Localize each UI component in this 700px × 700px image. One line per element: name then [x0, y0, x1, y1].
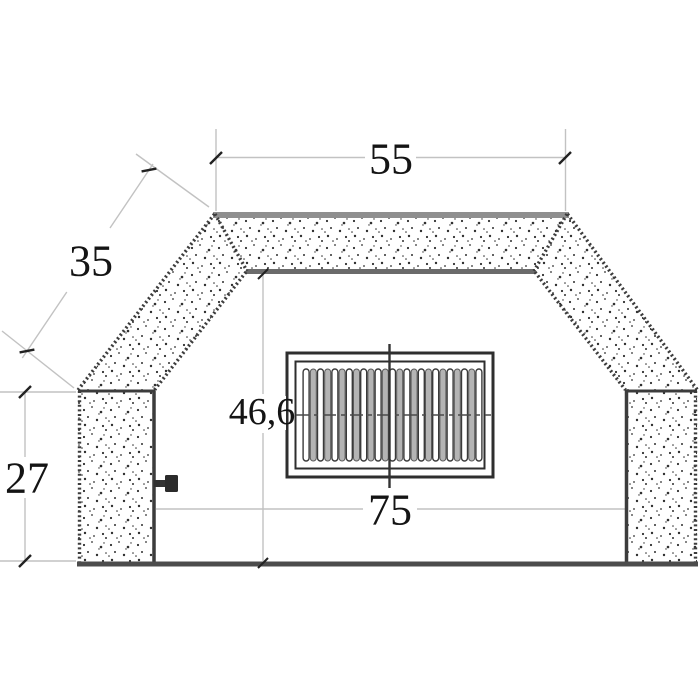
- right-pillar: [625, 391, 697, 564]
- dim35-ext-bottom: [2, 331, 74, 388]
- portal-drawing-svg: 55 35 27 75 46,6: [0, 0, 700, 700]
- dim35-line-b: [22, 292, 67, 358]
- label-opening-width: 75: [368, 486, 412, 535]
- dim35-ext-top: [136, 154, 209, 207]
- label-top-width: 55: [369, 135, 413, 184]
- top-beam: [215, 213, 567, 271]
- label-slope-length: 35: [69, 237, 113, 286]
- tick-35-bottom: [20, 350, 35, 353]
- grille-slat-white: [318, 369, 324, 461]
- knob-head: [165, 475, 178, 492]
- damper-knob: [154, 475, 178, 492]
- label-pillar-height: 27: [5, 454, 49, 503]
- dim35-line-a: [110, 164, 153, 228]
- technical-drawing-canvas: 55 35 27 75 46,6: [0, 0, 700, 700]
- left-pillar: [78, 391, 155, 564]
- tick-35-top: [142, 169, 157, 172]
- label-opening-height: 46,6: [229, 391, 296, 433]
- grille-slat-gray: [426, 369, 432, 461]
- vent-grille: [287, 344, 493, 488]
